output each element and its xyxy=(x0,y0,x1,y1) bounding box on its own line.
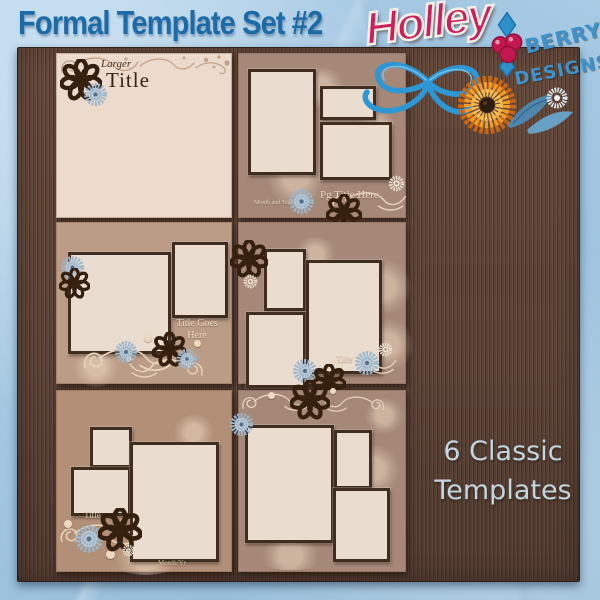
page-title: Formal Template Set #2 xyxy=(18,4,322,43)
dot xyxy=(106,550,115,559)
template-title-label: Title xyxy=(106,68,150,92)
brand-word-berry: BERRY xyxy=(522,18,600,59)
blue-flower-icon xyxy=(74,524,104,554)
tagline-line-1: 6 Classic xyxy=(420,432,586,471)
dot xyxy=(64,520,72,528)
photo-slot xyxy=(130,442,219,562)
photo-slot xyxy=(245,425,334,543)
splatter xyxy=(363,398,405,433)
template-title-label: Title xyxy=(336,354,353,364)
blue-flower-icon xyxy=(176,348,198,370)
daisy-icon xyxy=(454,74,520,136)
ribbon-bow-icon xyxy=(360,48,490,138)
photo-slot xyxy=(248,69,316,175)
template-6-preview xyxy=(238,390,406,572)
template-3-preview: Title Goes Here xyxy=(56,222,232,384)
swirl-icon xyxy=(240,388,312,414)
brand-name: Holley xyxy=(362,0,494,56)
promo-graphic: Formal Template Set #2 Larger Title Pg T… xyxy=(0,0,600,600)
template-title-label: Pg Title Here xyxy=(320,189,379,202)
template-title-label: Title Goes Here xyxy=(168,318,226,341)
photo-slot xyxy=(246,312,306,388)
dot xyxy=(120,518,126,524)
dot xyxy=(268,392,275,399)
blue-flower-icon xyxy=(83,82,108,107)
dot xyxy=(144,334,152,342)
template-5-preview: Title Month/Yr xyxy=(56,390,232,572)
photo-slot xyxy=(71,467,131,516)
tagline-line-2: Templates xyxy=(420,471,586,510)
white-flower-icon xyxy=(243,274,258,289)
dot xyxy=(126,356,132,362)
dot xyxy=(194,340,201,347)
brand-logo: Holley BERRY DESIGNS xyxy=(352,0,600,150)
dark-flower-icon xyxy=(60,59,102,101)
photo-slot xyxy=(264,249,306,311)
photo-slot xyxy=(90,427,132,468)
swirl-icon xyxy=(126,354,206,380)
template-caption-label: Month/Yr xyxy=(158,559,186,567)
template-title-label: Title xyxy=(84,510,101,520)
photo-slot xyxy=(333,488,390,562)
photo-slot xyxy=(334,430,372,489)
photo-slot xyxy=(172,242,228,318)
tagline: 6 Classic Templates xyxy=(420,432,586,510)
splatter xyxy=(253,540,328,570)
template-1-preview: Larger Title xyxy=(56,53,232,218)
leaf-cluster-icon xyxy=(498,80,580,136)
dot xyxy=(330,388,336,394)
brand-word-designs: DESIGNS xyxy=(513,51,600,90)
template-4-preview: Title xyxy=(238,222,406,384)
template-caption-label: Month and Year xyxy=(254,200,293,207)
photo-slot xyxy=(68,252,171,354)
